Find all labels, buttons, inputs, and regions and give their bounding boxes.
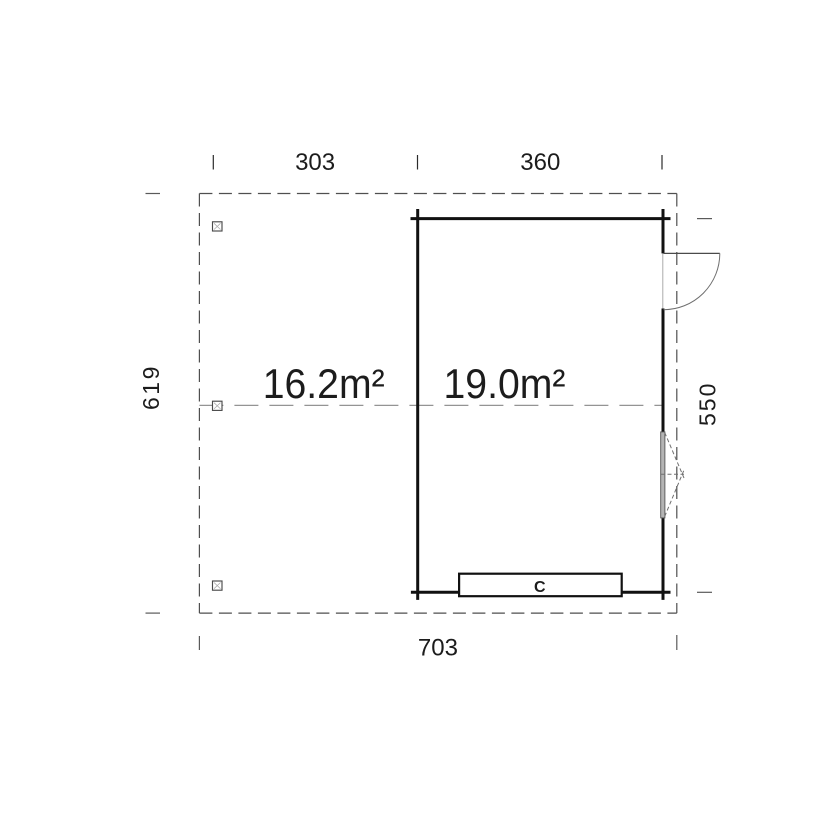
- svg-text:C: C: [534, 579, 546, 596]
- svg-text:303: 303: [295, 149, 335, 176]
- svg-text:16.2m²: 16.2m²: [263, 360, 385, 407]
- svg-text:19.0m²: 19.0m²: [444, 360, 566, 407]
- svg-text:360: 360: [520, 149, 560, 176]
- svg-text:703: 703: [418, 635, 458, 662]
- svg-text:550: 550: [695, 384, 721, 427]
- svg-text:619: 619: [138, 367, 164, 411]
